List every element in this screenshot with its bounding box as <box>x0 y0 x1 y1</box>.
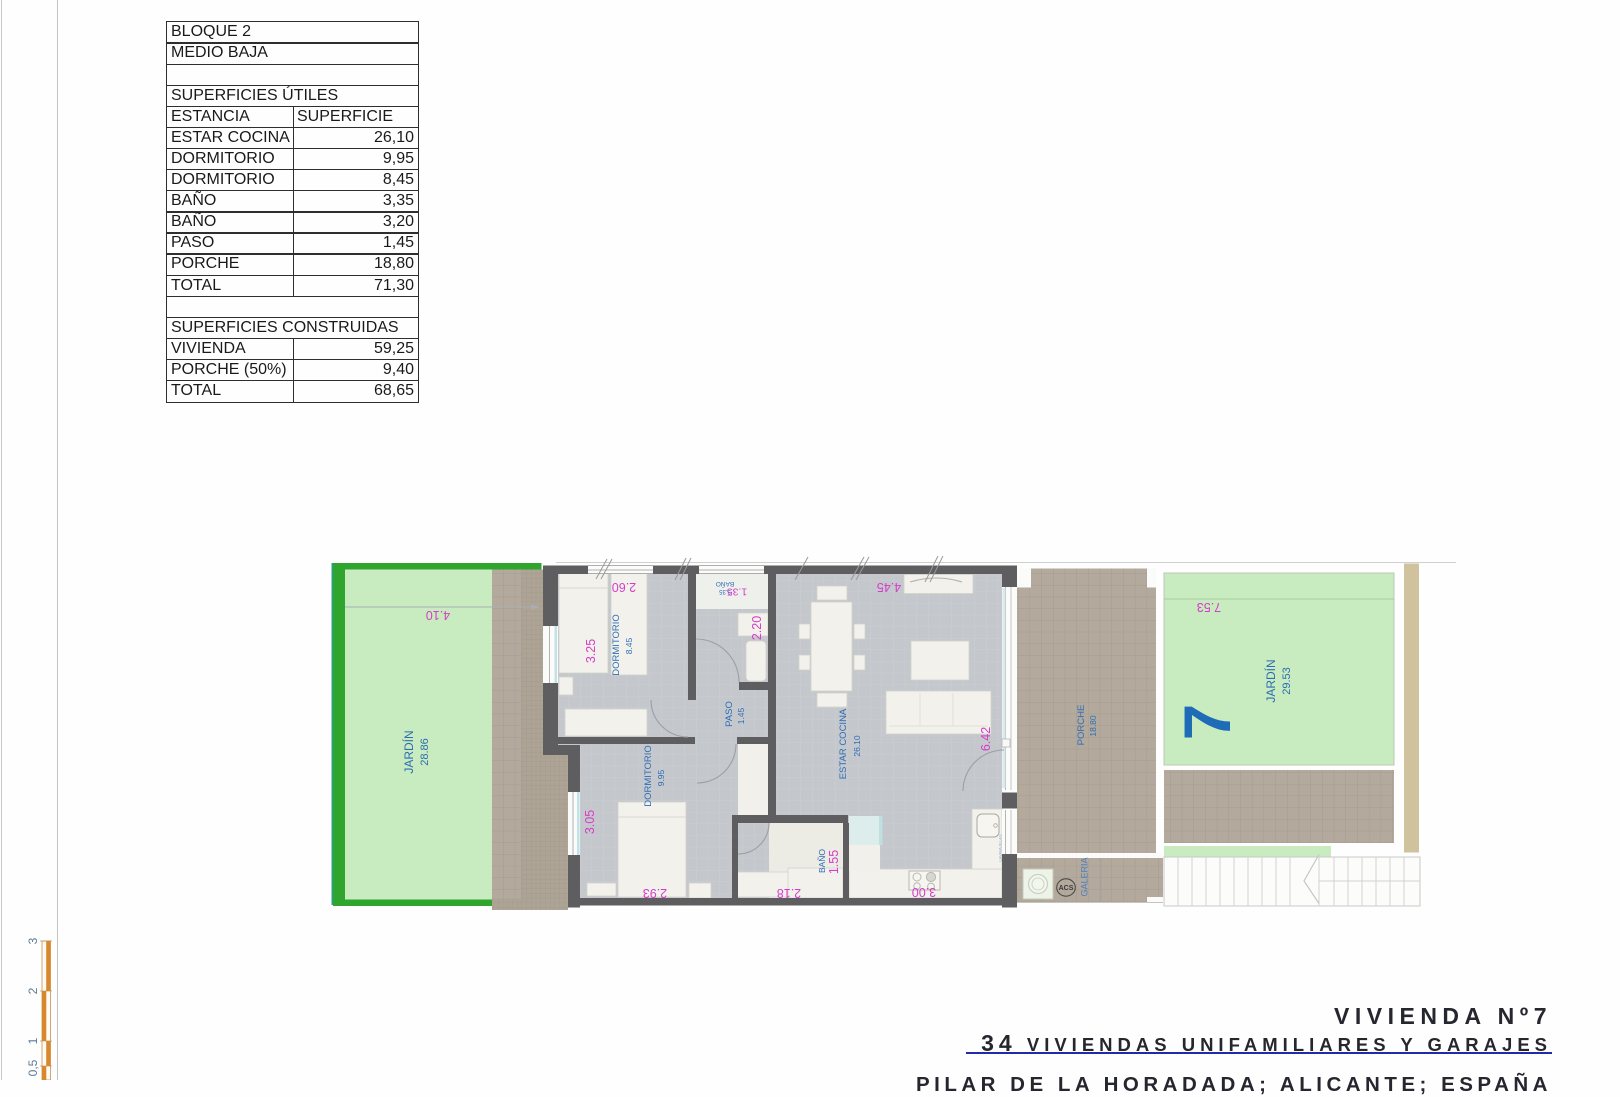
svg-text:7.53: 7.53 <box>1197 600 1221 614</box>
svg-text:9.95: 9.95 <box>656 769 666 786</box>
svg-text:JARDÍN: JARDÍN <box>401 730 416 773</box>
svg-text:4.10: 4.10 <box>426 608 450 622</box>
svg-text:26.10: 26.10 <box>852 735 862 757</box>
svg-text:2.60: 2.60 <box>612 580 636 594</box>
svg-text:29.53: 29.53 <box>1281 667 1293 695</box>
svg-text:2.20: 2.20 <box>750 616 764 640</box>
svg-text:PORCHE: PORCHE <box>1076 705 1087 746</box>
svg-text:0,5: 0,5 <box>26 1059 40 1076</box>
svg-text:1.55: 1.55 <box>827 850 841 874</box>
svg-text:GALERIA: GALERIA <box>1080 857 1090 896</box>
svg-text:DORMITORIO: DORMITORIO <box>611 614 622 676</box>
svg-text:BAÑO: BAÑO <box>817 849 827 873</box>
svg-text:ESTAR COCINA: ESTAR COCINA <box>838 708 849 779</box>
svg-text:4.45: 4.45 <box>877 580 901 594</box>
svg-text:8.45: 8.45 <box>624 637 634 654</box>
svg-text:6.42: 6.42 <box>979 727 993 751</box>
svg-text:LAVAVAJILLAS: LAVAVAJILLAS <box>998 834 1003 862</box>
svg-text:ACS: ACS <box>1059 885 1074 892</box>
svg-text:1.35: 1.35 <box>727 586 748 598</box>
svg-text:2.93: 2.93 <box>643 886 667 900</box>
svg-text:2: 2 <box>26 987 40 994</box>
svg-text:DORMITORIO: DORMITORIO <box>643 745 654 807</box>
svg-text:7: 7 <box>1170 704 1244 741</box>
svg-text:3.00: 3.00 <box>912 885 936 899</box>
svg-text:18.80: 18.80 <box>1088 715 1098 737</box>
svg-text:1.45: 1.45 <box>736 707 746 724</box>
svg-text:3: 3 <box>26 937 40 944</box>
svg-text:JARDÍN: JARDÍN <box>1263 659 1278 702</box>
svg-text:28.86: 28.86 <box>419 738 431 766</box>
svg-text:PASO: PASO <box>724 701 735 727</box>
svg-text:1: 1 <box>26 1037 40 1044</box>
svg-text:3.05: 3.05 <box>583 810 597 834</box>
svg-text:2.18: 2.18 <box>777 886 801 900</box>
svg-text:3.25: 3.25 <box>584 639 598 663</box>
